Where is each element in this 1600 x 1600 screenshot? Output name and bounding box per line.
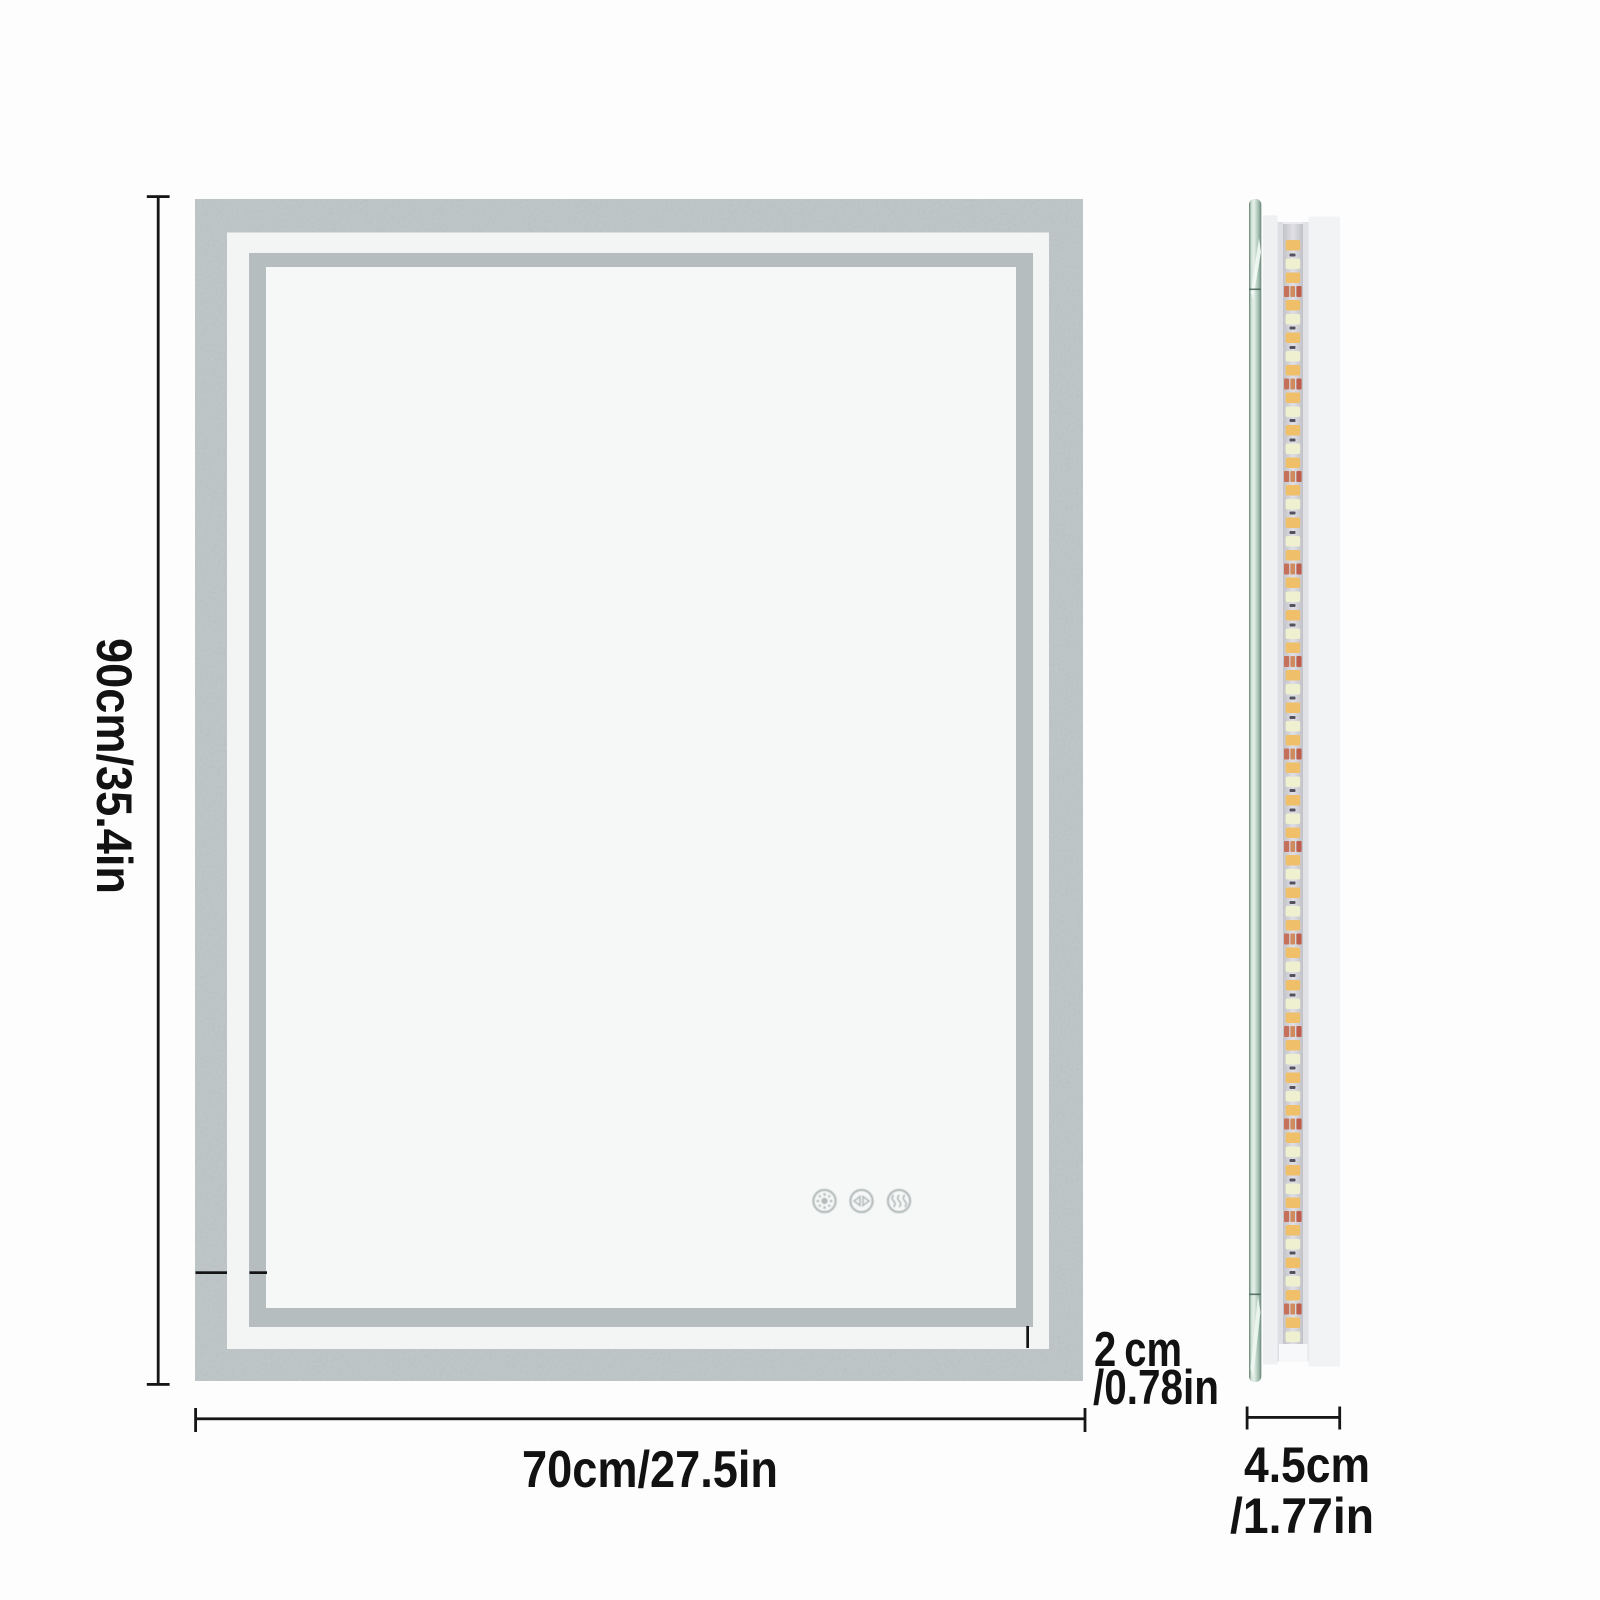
svg-text:70cm/27.5in: 70cm/27.5in	[522, 1441, 778, 1499]
svg-text:/0.78in: /0.78in	[1093, 1361, 1219, 1415]
svg-text:4.5cm: 4.5cm	[1244, 1437, 1370, 1493]
svg-text:/1.77in: /1.77in	[1230, 1488, 1374, 1544]
svg-text:90cm/35.4in: 90cm/35.4in	[86, 638, 142, 894]
